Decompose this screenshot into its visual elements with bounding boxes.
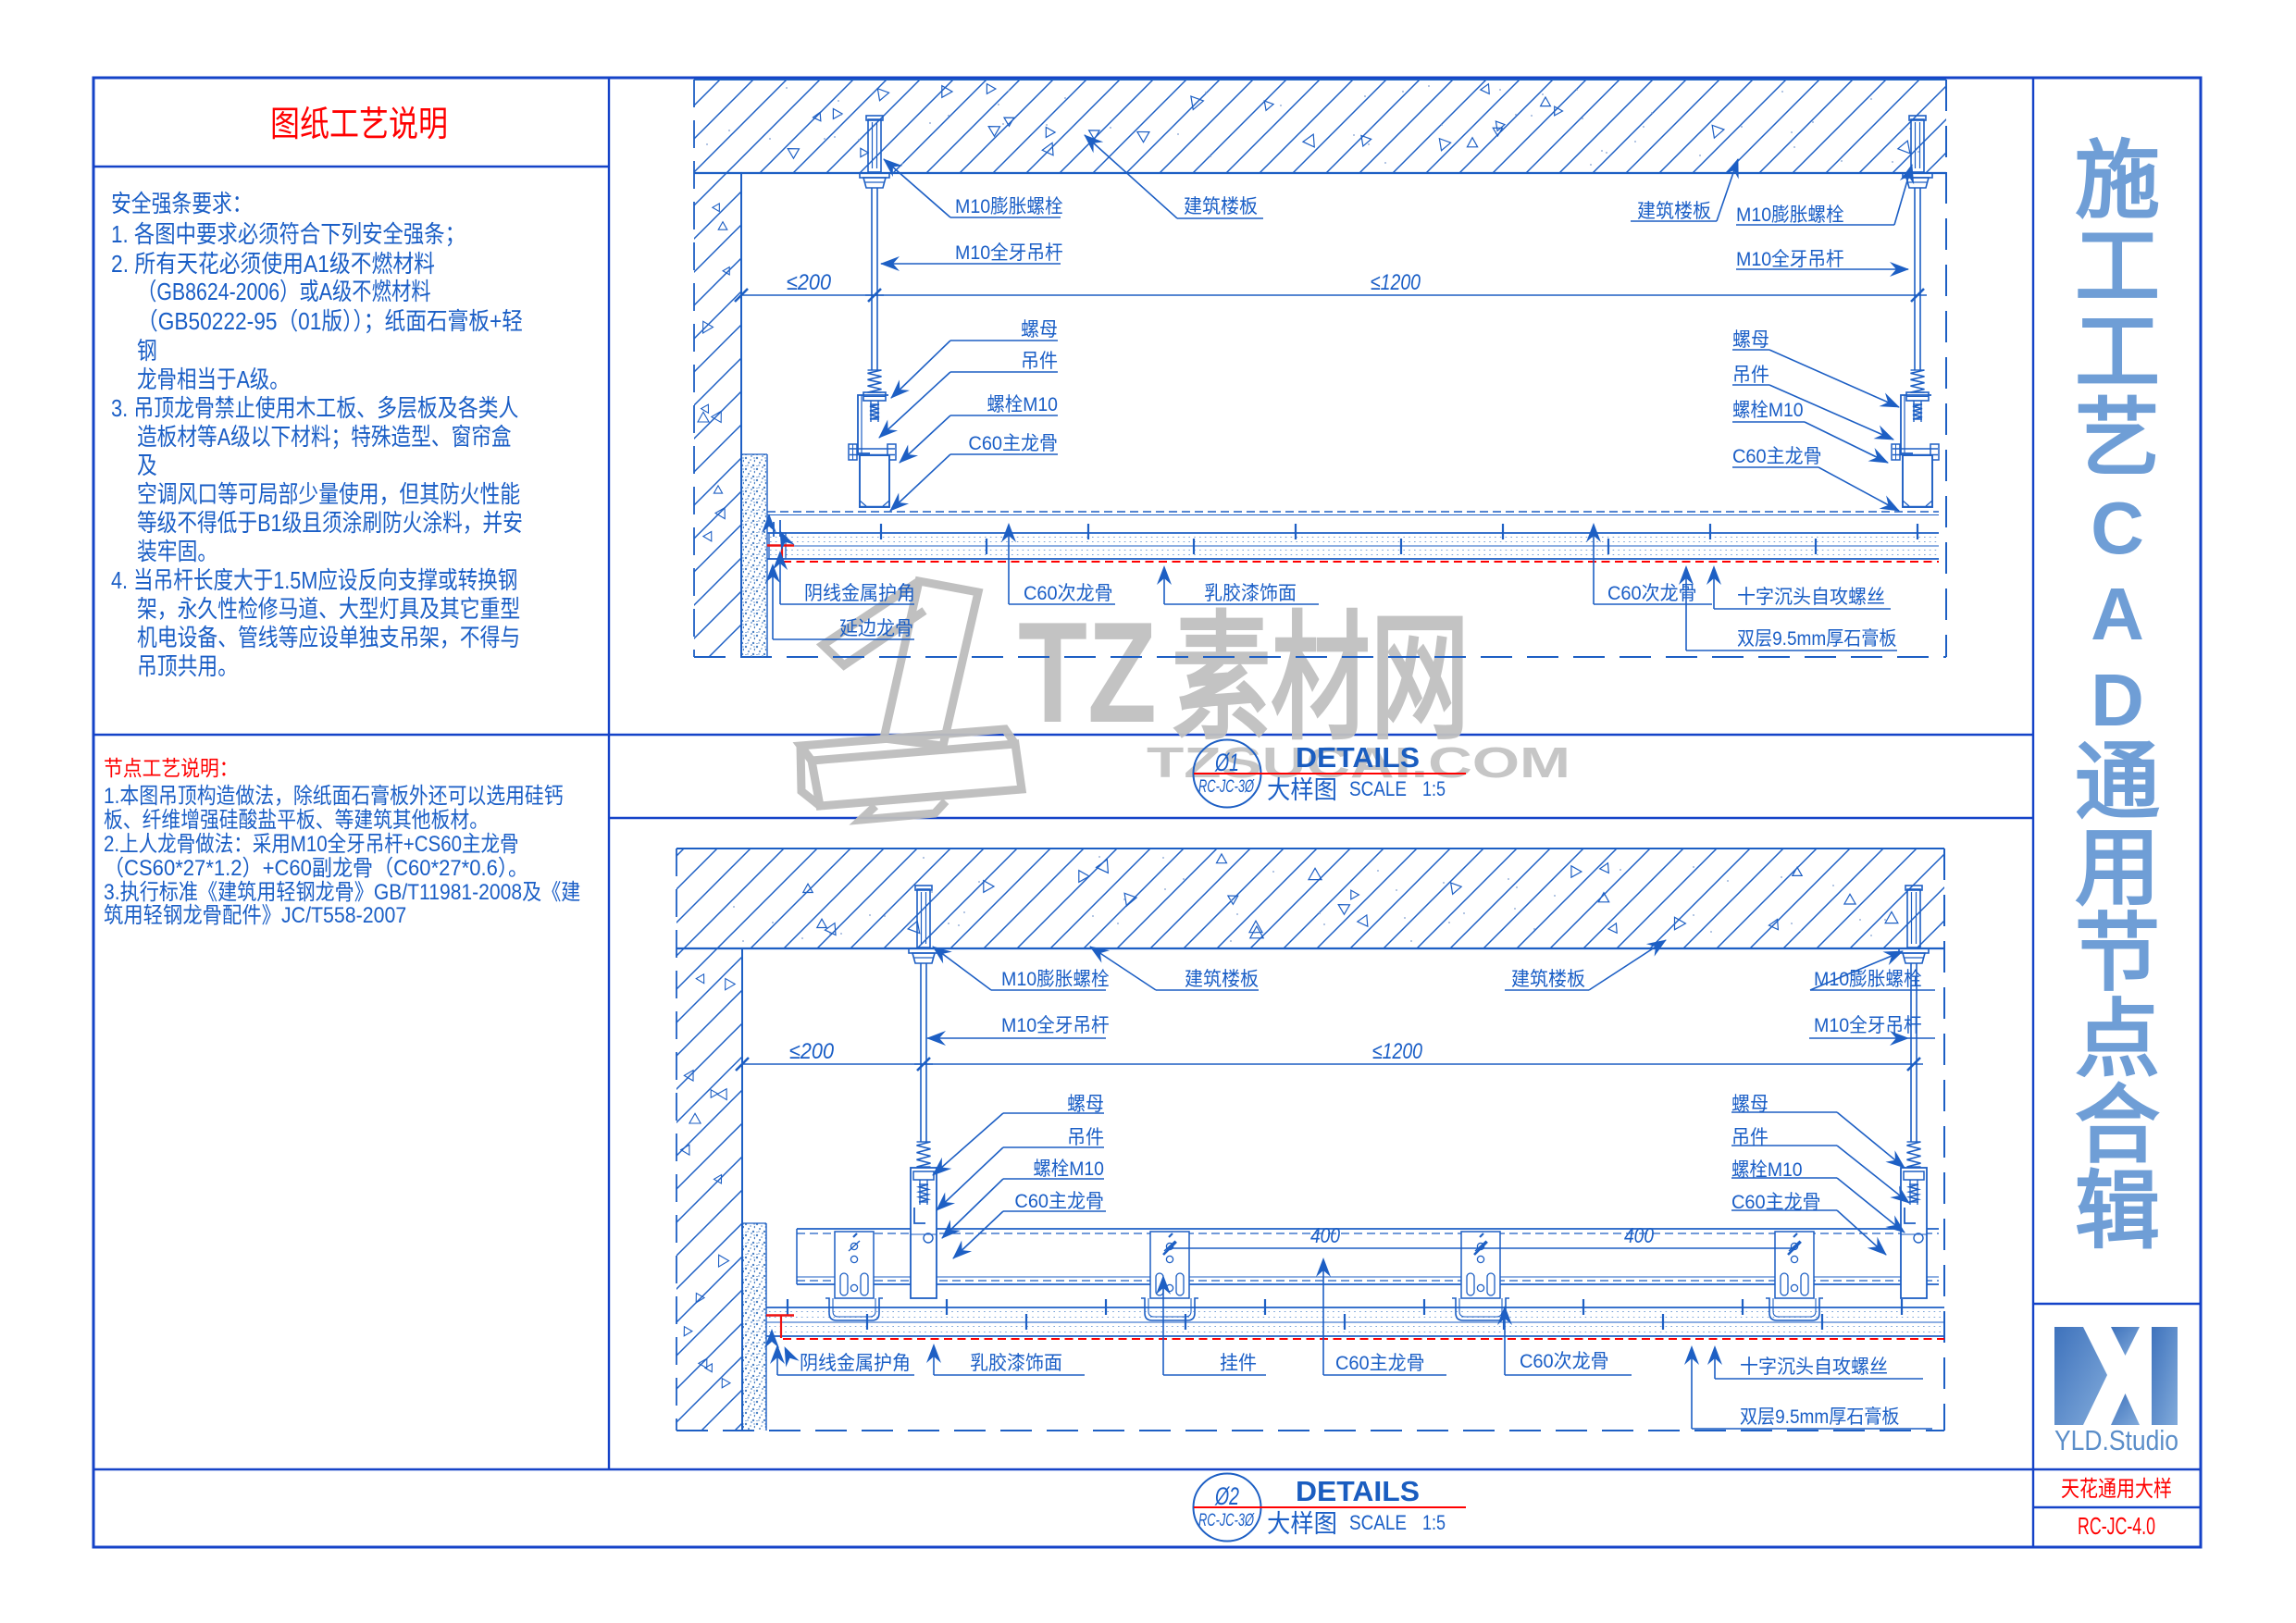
svg-text:螺母: 螺母 [1021, 319, 1058, 341]
svg-text:1:5: 1:5 [1422, 777, 1446, 800]
svg-text:1. 各图中要求必须符合下列安全强条；: 1. 各图中要求必须符合下列安全强条； [111, 220, 465, 248]
svg-text:通: 通 [2075, 736, 2160, 830]
svg-text:大样图: 大样图 [1267, 776, 1337, 804]
svg-text:RC-JC-4.0: RC-JC-4.0 [2078, 1512, 2155, 1540]
svg-text:C60次龙骨: C60次龙骨 [1520, 1351, 1609, 1372]
svg-text:装牢固。: 装牢固。 [137, 538, 217, 565]
svg-text:造板材等A级以下材料；特殊造型、窗帘盒: 造板材等A级以下材料；特殊造型、窗帘盒 [137, 423, 512, 451]
svg-text:≤200: ≤200 [789, 1039, 835, 1064]
svg-text:十字沉头自攻螺丝: 十字沉头自攻螺丝 [1737, 587, 1885, 608]
svg-text:阴线金属护角: 阴线金属护角 [800, 1353, 911, 1374]
svg-text:建筑楼板: 建筑楼板 [1184, 196, 1258, 217]
svg-text:架，永久性检修马道、大型灯具及其它重型: 架，永久性检修马道、大型灯具及其它重型 [137, 595, 520, 623]
svg-text:螺栓M10: 螺栓M10 [1033, 1158, 1104, 1180]
svg-text:工: 工 [2075, 220, 2160, 315]
svg-text:吊顶共用。: 吊顶共用。 [137, 652, 238, 680]
svg-text:建筑楼板: 建筑楼板 [1637, 201, 1711, 222]
svg-text:C60主龙骨: C60主龙骨 [1732, 446, 1822, 467]
svg-text:用: 用 [2075, 821, 2160, 915]
svg-text:2. 所有天花必须使用A1级不燃材料: 2. 所有天花必须使用A1级不燃材料 [111, 250, 435, 278]
svg-text:乳胶漆饰面: 乳胶漆饰面 [970, 1353, 1062, 1374]
svg-text:≤1200: ≤1200 [1371, 270, 1421, 295]
svg-text:板、纤维增强硅酸盐平板、等建筑其他板材。: 板、纤维增强硅酸盐平板、等建筑其他板材。 [104, 808, 489, 833]
svg-text:M10全牙吊杆: M10全牙吊杆 [955, 242, 1063, 264]
svg-text:C: C [2091, 487, 2144, 569]
svg-text:≤200: ≤200 [787, 270, 832, 295]
svg-text:C60次龙骨: C60次龙骨 [1024, 583, 1113, 604]
svg-text:DETAILS: DETAILS [1296, 741, 1420, 774]
svg-text:双层9.5mm厚石膏板: 双层9.5mm厚石膏板 [1737, 628, 1896, 650]
svg-text:M10膨胀螺栓: M10膨胀螺栓 [1814, 969, 1922, 990]
svg-text:（GB8624-2006）或A级不燃材料: （GB8624-2006）或A级不燃材料 [137, 278, 431, 305]
svg-text:吊件: 吊件 [1067, 1127, 1104, 1148]
svg-text:1:5: 1:5 [1422, 1511, 1446, 1534]
svg-text:（CS60*27*1.2）+C60副龙骨（C60*27*0.: （CS60*27*1.2）+C60副龙骨（C60*27*0.6）。 [104, 856, 528, 881]
svg-text:建筑楼板: 建筑楼板 [1185, 969, 1259, 990]
svg-text:吊件: 吊件 [1021, 351, 1058, 372]
svg-text:4. 当吊杆长度大于1.5M应设反向支撑或转换钢: 4. 当吊杆长度大于1.5M应设反向支撑或转换钢 [111, 566, 517, 594]
svg-text:M10膨胀螺栓: M10膨胀螺栓 [1736, 204, 1844, 226]
svg-text:DETAILS: DETAILS [1296, 1475, 1420, 1507]
svg-text:Ø1: Ø1 [1214, 749, 1239, 776]
svg-text:安全强条要求：: 安全强条要求： [111, 190, 253, 217]
svg-text:400: 400 [1310, 1223, 1340, 1247]
svg-text:M10膨胀螺栓: M10膨胀螺栓 [955, 196, 1063, 217]
svg-text:400: 400 [1624, 1223, 1654, 1247]
svg-text:建筑楼板: 建筑楼板 [1511, 969, 1585, 990]
svg-text:吊件: 吊件 [1732, 365, 1769, 386]
svg-text:C60次龙骨: C60次龙骨 [1607, 583, 1697, 604]
svg-text:挂件: 挂件 [1220, 1353, 1257, 1374]
svg-text:3. 吊顶龙骨禁止使用木工板、多层板及各类人: 3. 吊顶龙骨禁止使用木工板、多层板及各类人 [111, 394, 518, 422]
svg-text:素材网: 素材网 [1172, 601, 1470, 756]
svg-text:辑: 辑 [2075, 1165, 2160, 1259]
svg-text:A: A [2091, 573, 2144, 655]
svg-text:M10全牙吊杆: M10全牙吊杆 [1001, 1015, 1110, 1036]
svg-text:2.上人龙骨做法：采用M10全牙吊杆+CS60主龙骨: 2.上人龙骨做法：采用M10全牙吊杆+CS60主龙骨 [104, 832, 519, 857]
svg-text:Ø2: Ø2 [1214, 1482, 1239, 1510]
svg-text:M10膨胀螺栓: M10膨胀螺栓 [1001, 969, 1110, 990]
svg-text:点: 点 [2075, 993, 2160, 1087]
svg-text:筑用轻钢龙骨配件》JC/T558-2007: 筑用轻钢龙骨配件》JC/T558-2007 [104, 903, 406, 928]
svg-text:（GB50222-95（01版））；纸面石膏板+轻: （GB50222-95（01版））；纸面石膏板+轻 [137, 307, 523, 335]
svg-text:D: D [2091, 659, 2144, 741]
svg-text:艺: 艺 [2075, 391, 2160, 486]
svg-text:机电设备、管线等应设单独支吊架，不得与: 机电设备、管线等应设单独支吊架，不得与 [137, 624, 520, 651]
svg-text:螺栓M10: 螺栓M10 [1732, 400, 1804, 421]
svg-text:天花通用大样: 天花通用大样 [2061, 1477, 2172, 1502]
svg-text:乳胶漆饰面: 乳胶漆饰面 [1204, 583, 1297, 604]
svg-text:YLD.Studio: YLD.Studio [2054, 1424, 2178, 1456]
svg-text:C60主龙骨: C60主龙骨 [1014, 1191, 1104, 1212]
svg-text:3.执行标准《建筑用轻钢龙骨》GB/T11981-2008及: 3.执行标准《建筑用轻钢龙骨》GB/T11981-2008及《建 [104, 880, 580, 905]
svg-text:螺母: 螺母 [1732, 329, 1769, 351]
svg-text:节: 节 [2075, 907, 2160, 1001]
svg-text:合: 合 [2075, 1079, 2160, 1173]
svg-text:螺栓M10: 螺栓M10 [987, 394, 1058, 415]
svg-text:SCALE: SCALE [1349, 1511, 1407, 1534]
svg-text:C60主龙骨: C60主龙骨 [968, 433, 1058, 454]
svg-text:RC-JC-3Ø: RC-JC-3Ø [1198, 777, 1255, 797]
svg-text:M10全牙吊杆: M10全牙吊杆 [1736, 249, 1844, 270]
svg-text:施: 施 [2075, 134, 2160, 229]
svg-text:C60主龙骨: C60主龙骨 [1335, 1353, 1425, 1374]
svg-text:≤1200: ≤1200 [1372, 1039, 1423, 1064]
svg-text:双层9.5mm厚石膏板: 双层9.5mm厚石膏板 [1740, 1406, 1899, 1428]
svg-text:延边龙骨: 延边龙骨 [839, 618, 913, 639]
svg-text:等级不得低于B1级且须涂刷防火涂料，并安: 等级不得低于B1级且须涂刷防火涂料，并安 [137, 509, 523, 537]
svg-text:工: 工 [2075, 306, 2160, 401]
svg-text:十字沉头自攻螺丝: 十字沉头自攻螺丝 [1740, 1357, 1888, 1378]
svg-text:RC-JC-3Ø: RC-JC-3Ø [1198, 1511, 1255, 1530]
svg-text:M10全牙吊杆: M10全牙吊杆 [1814, 1015, 1922, 1036]
svg-text:节点工艺说明：: 节点工艺说明： [104, 756, 239, 780]
svg-text:钢: 钢 [137, 337, 157, 365]
svg-text:阴线金属护角: 阴线金属护角 [804, 583, 915, 604]
svg-text:空调风口等可局部少量使用，但其防火性能: 空调风口等可局部少量使用，但其防火性能 [137, 480, 520, 508]
svg-text:大样图: 大样图 [1267, 1510, 1337, 1538]
svg-text:1.本图吊顶构造做法，除纸面石膏板外还可以选用硅钙: 1.本图吊顶构造做法，除纸面石膏板外还可以选用硅钙 [104, 784, 564, 809]
svg-text:及: 及 [137, 452, 157, 479]
svg-text:螺母: 螺母 [1067, 1094, 1104, 1115]
svg-text:TZ: TZ [1018, 592, 1157, 752]
svg-text:图纸工艺说明: 图纸工艺说明 [270, 105, 448, 144]
svg-text:龙骨相当于A级。: 龙骨相当于A级。 [137, 365, 290, 393]
svg-text:SCALE: SCALE [1349, 777, 1407, 800]
